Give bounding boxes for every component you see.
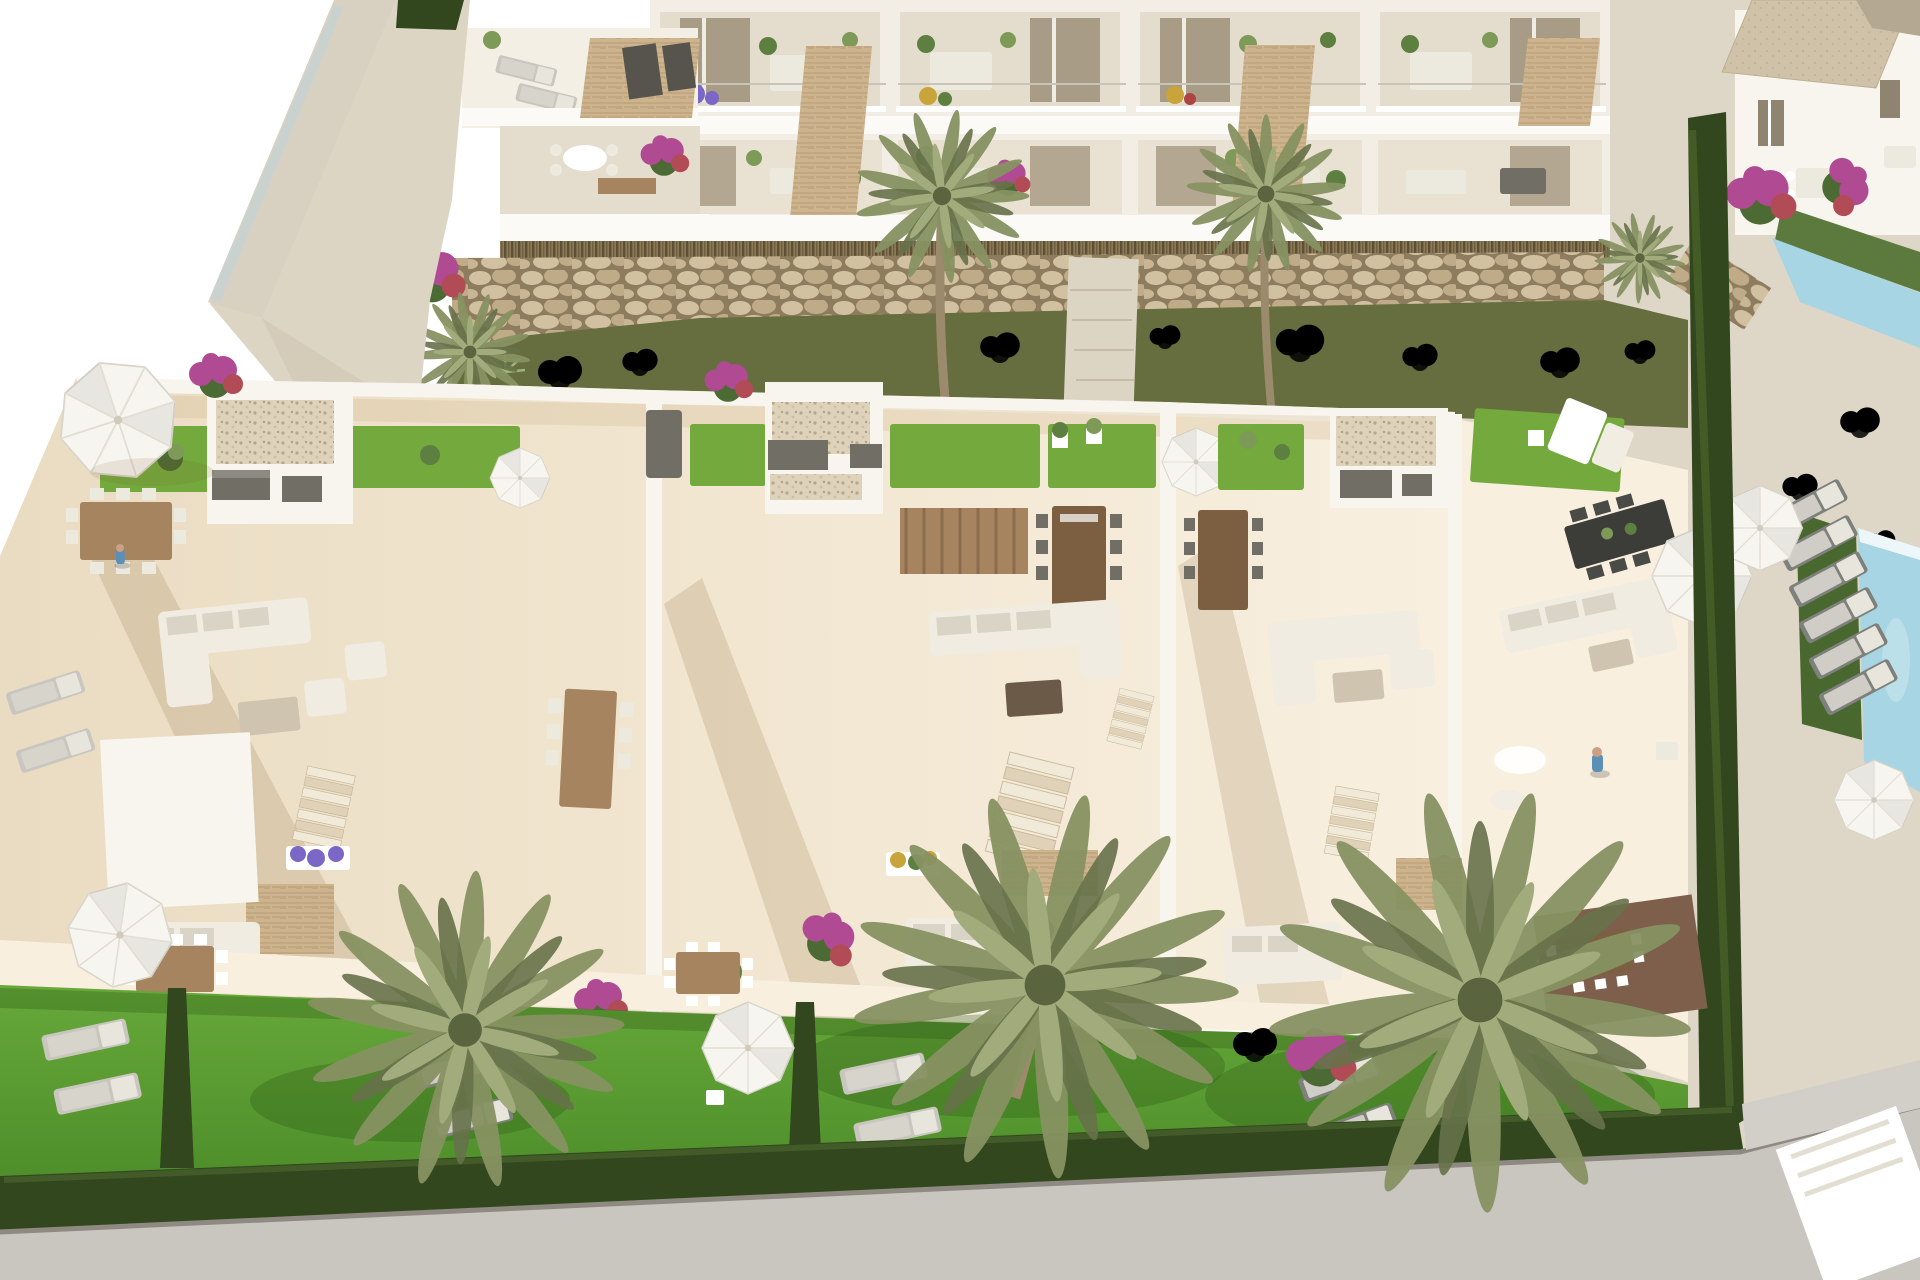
ac-unit <box>1402 474 1432 496</box>
ac-unit <box>768 440 828 470</box>
rooftop-sofa-gray <box>646 410 682 478</box>
architectural-render <box>0 0 1920 1280</box>
wood-pergola <box>900 508 1028 574</box>
rooftop-parasol <box>490 448 550 508</box>
garden-parasol <box>702 1002 794 1094</box>
top-hedge <box>396 0 464 30</box>
ac-unit <box>1340 470 1392 498</box>
render-canvas <box>0 0 1920 1280</box>
rooftop-turf <box>890 424 1040 488</box>
pool-parasol <box>1834 760 1914 840</box>
rooftop-turf <box>690 424 766 486</box>
ac-unit <box>282 476 322 502</box>
floor-slab <box>650 116 1610 134</box>
gravel-bed <box>216 400 334 464</box>
solar-panel <box>622 43 663 99</box>
stone-cladding-panel <box>1518 38 1600 126</box>
rooftop-turf <box>1218 424 1304 490</box>
gravel-bed <box>1336 416 1436 466</box>
ac-unit <box>850 444 882 468</box>
divider-wall <box>646 392 662 1064</box>
apartment-building-row <box>462 0 1610 258</box>
garden-path <box>1063 257 1139 423</box>
lower-bulkhead <box>100 732 259 910</box>
terrace-fascia <box>650 215 1610 241</box>
